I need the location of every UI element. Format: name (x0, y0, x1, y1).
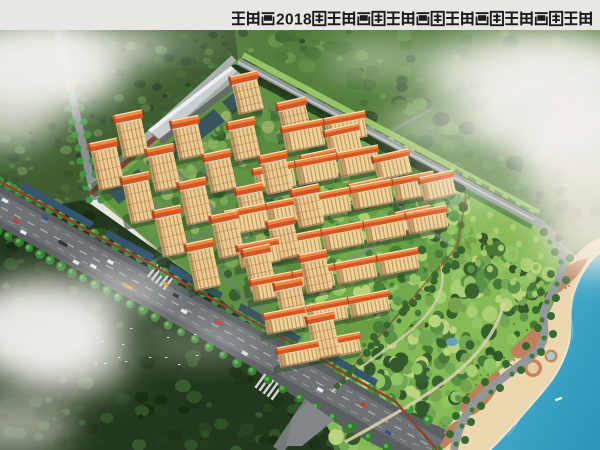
svg-text:2018: 2018 (276, 11, 312, 28)
